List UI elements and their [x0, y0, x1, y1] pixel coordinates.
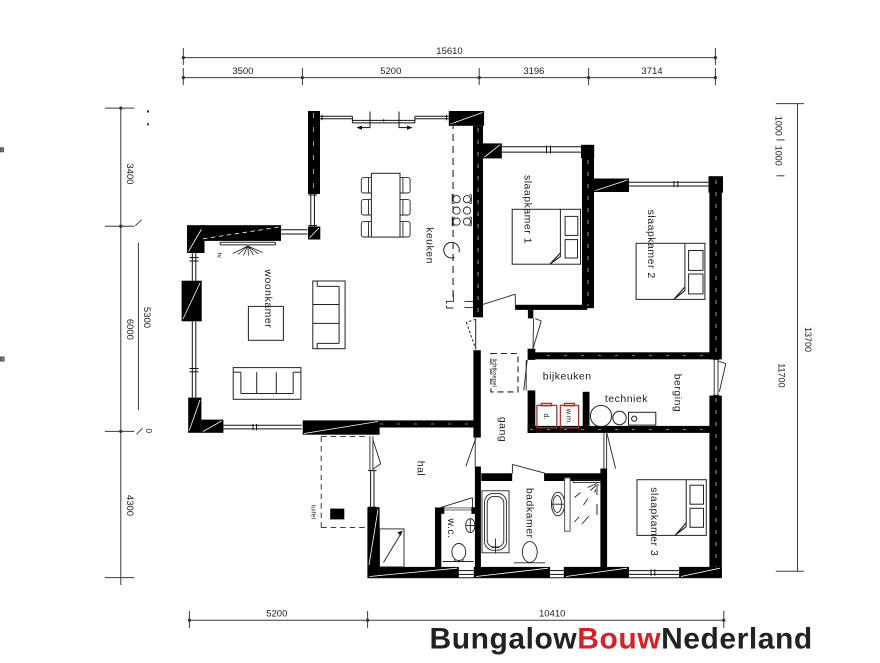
svg-text:13700: 13700 [803, 327, 813, 352]
svg-text:berging: berging [672, 374, 684, 413]
svg-text:3196: 3196 [523, 66, 544, 77]
svg-text:slaapkamer 3: slaapkamer 3 [648, 487, 660, 556]
svg-text:hal: hal [414, 461, 426, 477]
svg-text:gang: gang [497, 417, 509, 442]
svg-text:w.c.: w.c. [445, 517, 457, 538]
svg-text:BungalowBouwNederland: BungalowBouwNederland [430, 623, 813, 656]
svg-text:10410: 10410 [539, 609, 565, 620]
svg-text:tv: tv [216, 253, 223, 259]
svg-text:slaapkamer 2: slaapkamer 2 [645, 210, 657, 279]
svg-text:5200: 5200 [380, 66, 401, 77]
svg-text:woonkamer: woonkamer [262, 268, 274, 328]
svg-text:1000: 1000 [774, 116, 784, 136]
svg-text:1000: 1000 [774, 146, 784, 166]
svg-text:keuken: keuken [424, 227, 436, 264]
svg-text:0: 0 [144, 428, 154, 433]
svg-text:3400: 3400 [124, 163, 135, 184]
svg-text:3714: 3714 [641, 66, 662, 77]
svg-text:5300: 5300 [141, 307, 152, 328]
svg-text:6000: 6000 [124, 319, 135, 340]
svg-text:11700: 11700 [777, 363, 787, 387]
svg-text:techniek: techniek [605, 393, 648, 405]
svg-text:5200: 5200 [266, 609, 287, 620]
svg-text:d.: d. [542, 413, 551, 419]
svg-text:badkamer: badkamer [524, 488, 536, 539]
svg-text:w.m.: w.m. [565, 408, 574, 424]
svg-text:15610: 15610 [436, 46, 462, 57]
svg-text:luifel: luifel [310, 505, 317, 520]
svg-text:4300: 4300 [124, 495, 135, 516]
svg-text:3500: 3500 [232, 66, 253, 77]
svg-text:slaapkamer 1: slaapkamer 1 [521, 175, 533, 244]
svg-text:bijkeuken: bijkeuken [543, 371, 592, 383]
svg-text:lichtkoepel: lichtkoepel [490, 359, 496, 387]
